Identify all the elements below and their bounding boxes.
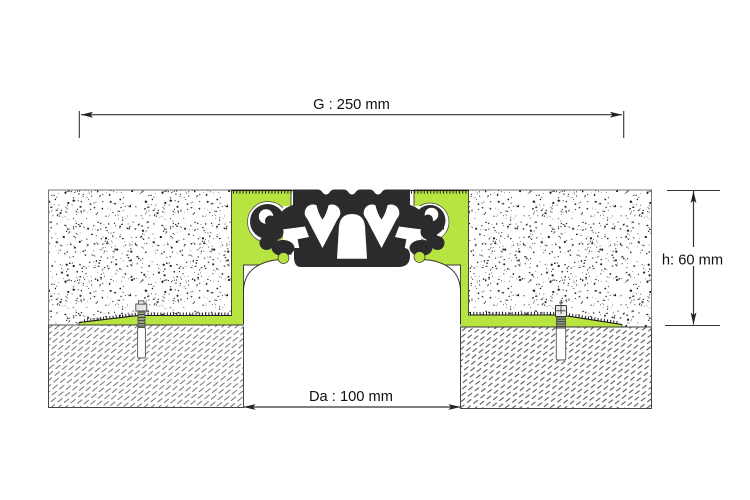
svg-text:G : 250 mm: G : 250 mm [313, 97, 390, 113]
svg-text:Da : 100 mm: Da : 100 mm [309, 389, 393, 405]
svg-text:h: 60 mm: h: 60 mm [662, 253, 723, 269]
